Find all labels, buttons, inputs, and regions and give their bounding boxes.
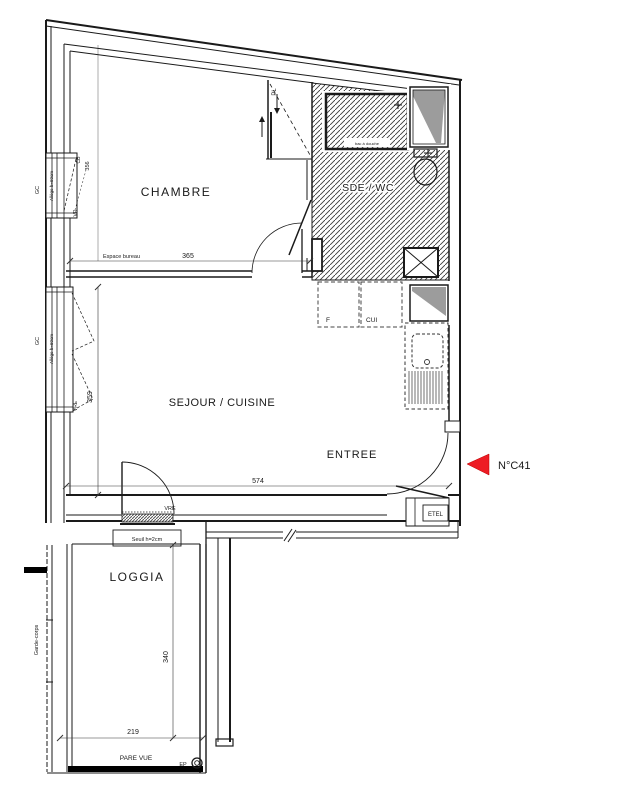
label-gc-sejour: GC (35, 337, 41, 345)
label-allege-sejour: Allège h=60cm (49, 334, 54, 364)
room-label-sejour-cuisine: SEJOUR / CUISINE (169, 397, 275, 409)
dim-574: 574 (252, 478, 264, 485)
room-label-entree: ENTREE (327, 449, 378, 461)
unit-number-label: N°C41 (498, 460, 531, 472)
label-etel: ETEL (428, 512, 444, 518)
label-cb: CB (76, 156, 82, 164)
label-vre-door: VRE (164, 506, 176, 512)
label-shower: bac à douche (355, 141, 380, 146)
unit-arrow (467, 454, 489, 475)
label-vre-window: VRE (73, 400, 79, 411)
label-vr: VR (73, 209, 79, 216)
kitchen-window (407, 281, 451, 325)
room-label-chambre: CHAMBRE (141, 185, 212, 199)
dim-359: 359 (87, 391, 94, 403)
entrance-door (387, 433, 449, 498)
floor-plan-page: CHAMBRE SDE / WC SEJOUR / CUISINE ENTREE… (0, 0, 623, 800)
label-kitchen-unit: CUI (366, 317, 377, 324)
room-label-loggia: LOGGIA (109, 570, 164, 584)
top-exterior-wall (46, 20, 462, 94)
label-ep: EP (179, 762, 187, 768)
label-fridge: F (326, 317, 330, 324)
label-garde-corps: Garde-corps (34, 624, 40, 655)
label-pl: PL (272, 88, 278, 96)
dim-340: 340 (163, 651, 170, 663)
kitchen-appliances (318, 282, 402, 327)
kitchen-sink (405, 323, 448, 409)
loggia-door (120, 462, 175, 524)
sde-window (407, 84, 451, 150)
closet-pl (259, 80, 312, 159)
chambre-bottom-wall (66, 223, 312, 277)
room-label-sde-wc: SDE / WC (342, 182, 394, 194)
dim-espace-bureau: Espace bureau (103, 254, 140, 260)
label-seuil: Seuil h=2cm (132, 537, 163, 543)
dim-365: 365 (182, 253, 194, 260)
label-allege-chambre: Allège h=60cm (49, 171, 54, 201)
label-gc-chambre: GC (35, 186, 41, 194)
dim-356: 356 (85, 161, 91, 170)
floor-plan-drawing: CHAMBRE SDE / WC SEJOUR / CUISINE ENTREE… (0, 0, 623, 800)
label-pare-vue: PARE VUE (120, 755, 153, 762)
washbasin (404, 248, 438, 277)
dim-219: 219 (127, 729, 139, 736)
